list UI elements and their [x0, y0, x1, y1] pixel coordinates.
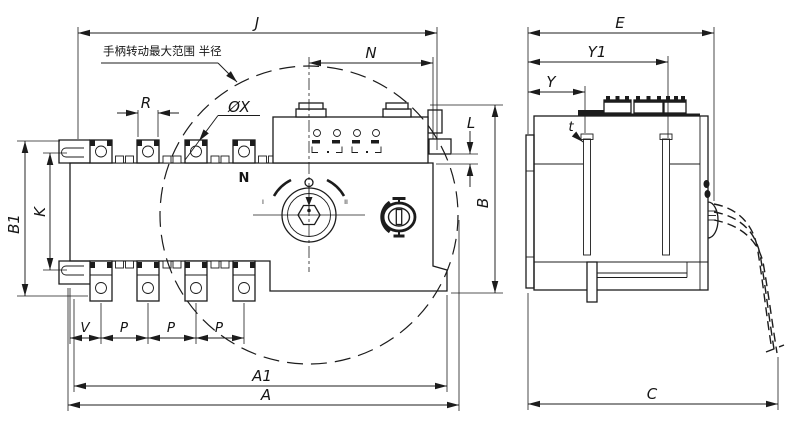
bottom-terminals	[90, 261, 255, 301]
terminal	[137, 140, 159, 163]
separator-plate-right	[663, 139, 670, 255]
side-body	[534, 96, 718, 302]
dim-C: C	[528, 293, 778, 410]
separator-plate-left	[584, 139, 591, 255]
dim-R: R	[117, 94, 179, 137]
handle-arc-left	[274, 180, 291, 196]
panel-top-block	[383, 103, 411, 117]
technical-drawing: N I II	[0, 0, 790, 432]
dim-label-l: L	[467, 114, 475, 132]
mounting-plate	[526, 135, 534, 288]
handle-position-left: I	[262, 198, 264, 206]
terminal	[185, 261, 207, 301]
dim-label-j: J	[252, 14, 259, 32]
handle-position-right: II	[344, 198, 348, 206]
terminal	[233, 261, 255, 301]
dim-label-p: P	[215, 320, 224, 336]
dim-A1: A1	[74, 295, 447, 392]
side-view: E Y1 Y t C	[526, 14, 784, 410]
control-panel	[273, 103, 428, 163]
dim-label-v: V	[80, 320, 91, 336]
dim-label-p: P	[167, 320, 176, 336]
right-upper-tab	[428, 110, 442, 133]
dim-label-a: A	[260, 386, 271, 404]
side-top-block	[634, 96, 663, 113]
panel-top-block	[296, 103, 326, 117]
dim-label-n: N	[365, 44, 376, 62]
dim-K: K	[31, 153, 67, 270]
bottom-foot	[587, 262, 597, 302]
mount-slot-bottom	[62, 266, 85, 275]
handle-range-note: 手柄转动最大范围 半径	[103, 44, 222, 58]
side-top-block	[604, 96, 631, 113]
dim-label-b1: B1	[5, 214, 23, 234]
dim-label-y: Y	[546, 73, 557, 91]
handle-pointer-arrow	[306, 197, 313, 206]
key-slot	[396, 210, 401, 225]
dim-label-y1: Y1	[588, 43, 607, 61]
front-view: N I II	[5, 14, 503, 411]
handle-range-annotation: 手柄转动最大范围 半径	[101, 44, 237, 82]
dim-B1: B1	[5, 141, 88, 296]
dim-label-e: E	[615, 14, 625, 32]
mount-hook-top	[59, 140, 90, 163]
phantom-handle	[714, 204, 784, 353]
top-terminals	[90, 140, 255, 163]
right-lower-tab	[429, 139, 451, 154]
dim-label-phi-x: ØX	[227, 98, 251, 116]
handle-arc-right	[327, 180, 344, 196]
terminal	[90, 140, 112, 163]
terminal	[185, 140, 207, 163]
mount-slot-top	[62, 148, 85, 157]
drawing-page: N I II	[0, 0, 790, 432]
dim-Y: Y	[528, 73, 585, 133]
interphase-barriers	[116, 156, 277, 268]
key-lock	[382, 199, 415, 237]
dim-label-b: B	[474, 198, 492, 208]
mount-hook-bottom	[59, 261, 90, 284]
terminal	[137, 261, 159, 301]
terminal-neutral	[233, 140, 255, 163]
dim-label-c: C	[647, 385, 658, 403]
dim-label-t: t	[568, 119, 574, 135]
dim-label-p: P	[120, 320, 129, 336]
terminal	[90, 261, 112, 301]
dim-label-a1: A1	[251, 367, 272, 385]
neutral-pole-label: N	[239, 171, 250, 186]
dim-label-k: K	[31, 206, 49, 217]
dim-label-r: R	[141, 94, 151, 112]
rotary-handle: I II	[262, 179, 348, 243]
side-top-block	[664, 96, 686, 113]
